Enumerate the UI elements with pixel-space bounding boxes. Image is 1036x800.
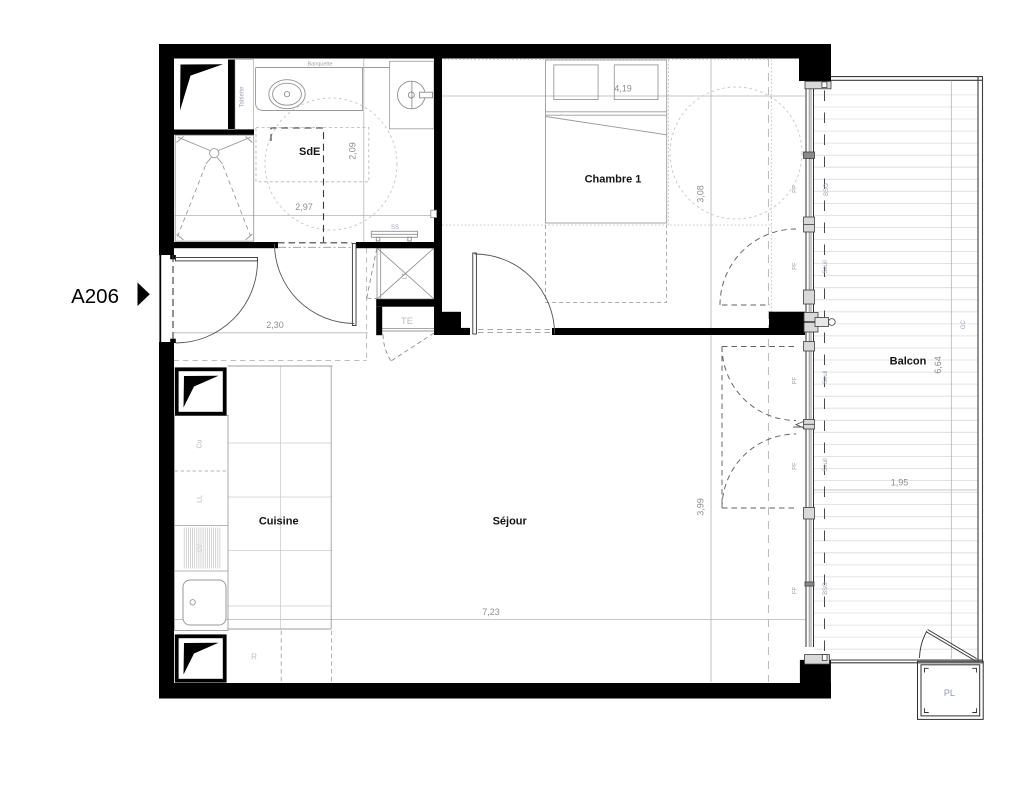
svg-text:R: R — [251, 653, 257, 662]
svg-text:PF: PF — [793, 376, 799, 384]
svg-text:FF: FF — [793, 587, 799, 595]
svg-text:Seuil: Seuil — [823, 371, 829, 384]
svg-text:Balcon: Balcon — [890, 356, 927, 368]
svg-text:Chambre 1: Chambre 1 — [585, 174, 642, 186]
svg-text:Séjour: Séjour — [493, 516, 528, 528]
svg-text:Cu: Cu — [197, 439, 204, 448]
svg-text:PL: PL — [944, 688, 955, 698]
svg-text:7,23: 7,23 — [482, 607, 500, 617]
svg-text:LT: LT — [403, 272, 409, 279]
svg-text:LV: LV — [197, 544, 204, 552]
svg-text:SS: SS — [391, 225, 399, 231]
svg-text:2,30: 2,30 — [266, 320, 284, 330]
svg-text:1,95: 1,95 — [891, 478, 909, 488]
svg-text:GC: GC — [961, 320, 967, 330]
svg-text:2,97: 2,97 — [295, 202, 313, 212]
svg-text:SdE: SdE — [299, 146, 320, 158]
svg-text:PF: PF — [793, 185, 799, 193]
svg-text:BSO: BSO — [823, 582, 829, 595]
svg-text:PF: PF — [793, 262, 799, 270]
svg-text:BSO: BSO — [824, 183, 830, 196]
svg-text:A206: A206 — [71, 285, 119, 308]
svg-text:Cuisine: Cuisine — [259, 516, 299, 528]
svg-text:2,09: 2,09 — [348, 142, 358, 160]
svg-text:Banquette: Banquette — [307, 62, 332, 68]
svg-text:4,19: 4,19 — [614, 84, 632, 94]
svg-text:Seuil: Seuil — [823, 458, 829, 471]
svg-text:TE: TE — [401, 316, 413, 327]
svg-text:PF: PF — [793, 462, 799, 470]
svg-text:3,99: 3,99 — [696, 498, 706, 516]
svg-text:3,08: 3,08 — [696, 185, 706, 203]
svg-text:LL: LL — [197, 495, 204, 503]
svg-text:6,64: 6,64 — [933, 356, 943, 374]
svg-text:Seuil: Seuil — [823, 260, 829, 273]
svg-text:Tablette: Tablette — [240, 86, 246, 108]
